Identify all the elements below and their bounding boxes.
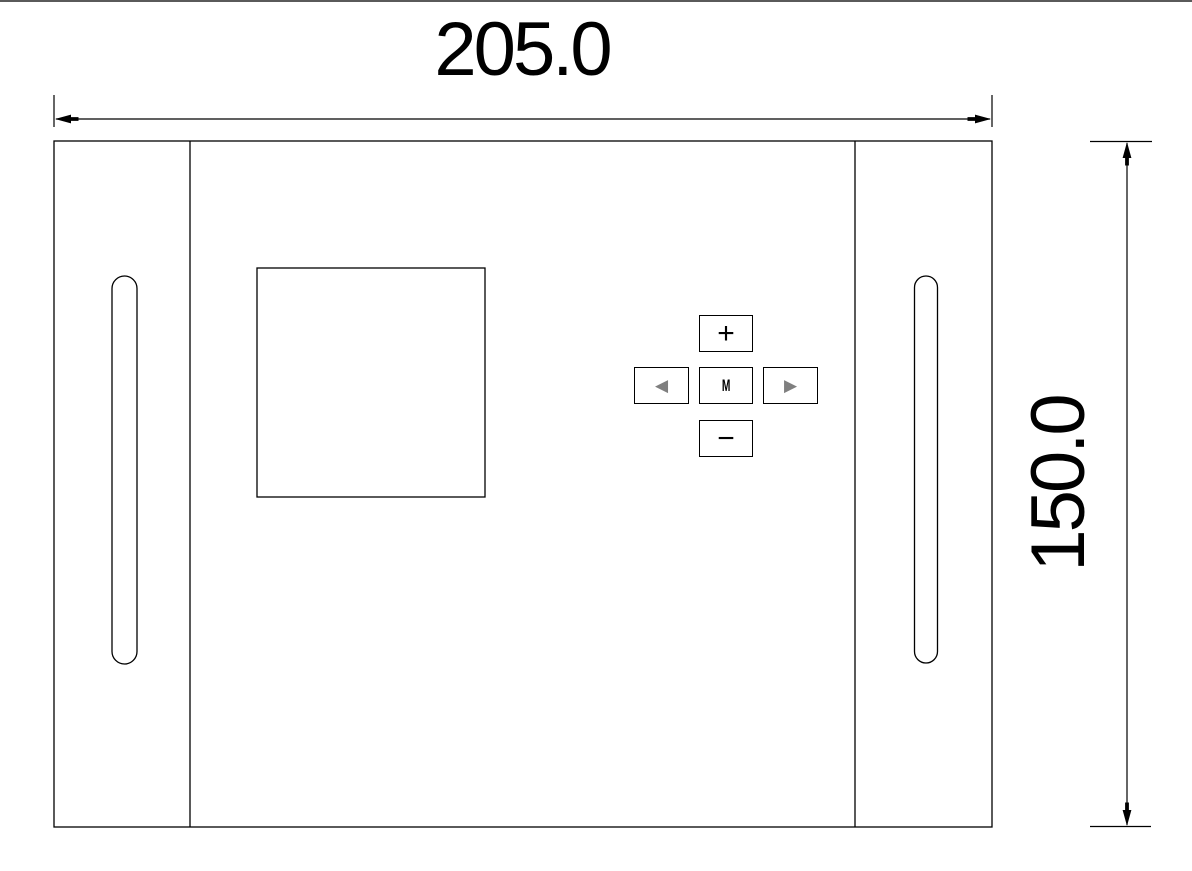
panel-drawing — [0, 0, 1192, 871]
minus-button: − — [699, 420, 753, 457]
menu-button-label: M — [722, 377, 731, 394]
display-window — [257, 268, 485, 497]
right-arrow-button: ▶ — [763, 367, 818, 404]
width-dimension-label: 205.0 — [332, 12, 712, 88]
dim-arrow-down-icon — [1123, 803, 1132, 827]
minus-button-label: − — [717, 424, 735, 454]
device-outline — [54, 141, 992, 827]
left-arrow-button: ◀ — [634, 367, 689, 404]
right-slot — [915, 276, 938, 663]
left-triangle-icon: ◀ — [655, 377, 668, 394]
menu-button: M — [699, 367, 753, 404]
dim-arrow-right-icon — [968, 115, 992, 124]
dim-arrow-up-icon — [1123, 142, 1132, 166]
right-triangle-icon: ▶ — [784, 377, 797, 394]
drawing-canvas: 205.0 150.0 + ◀ M ▶ − — [0, 0, 1192, 871]
dim-arrow-left-icon — [55, 115, 79, 124]
height-dimension-label: 150.0 — [1021, 374, 1097, 594]
plus-button-label: + — [717, 319, 735, 349]
plus-button: + — [699, 315, 753, 352]
left-slot — [112, 276, 137, 664]
